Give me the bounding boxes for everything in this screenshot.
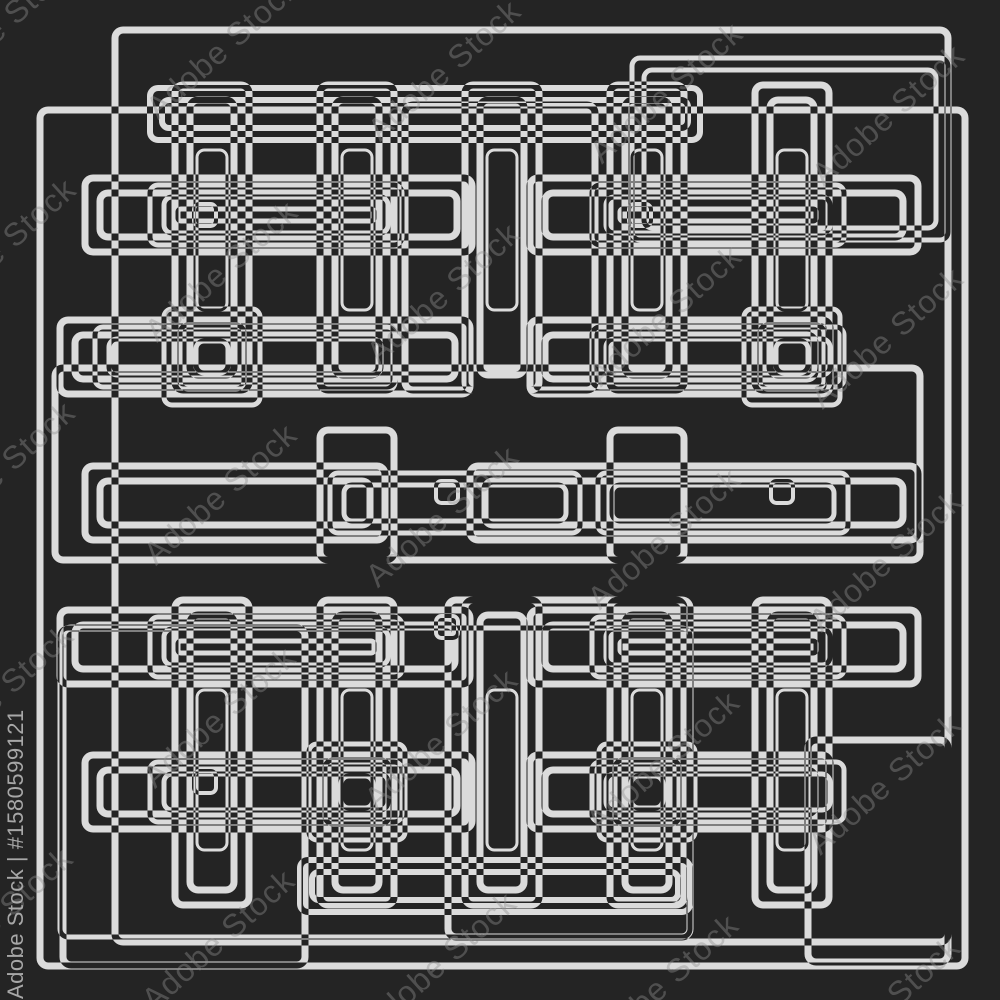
abstract-rectangles-pattern <box>0 0 1000 1000</box>
stock-image-canvas: Adobe StockAdobe StockAdobe StockAdobe S… <box>0 0 1000 1000</box>
